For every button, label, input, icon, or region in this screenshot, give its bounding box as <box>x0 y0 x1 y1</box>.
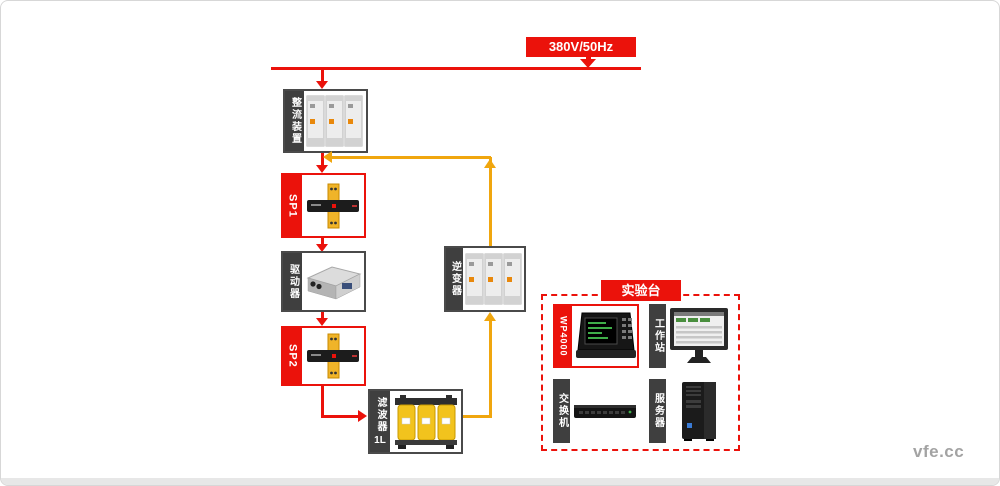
diagram-canvas: 380V/50Hz 整流装置 <box>0 0 1000 486</box>
filter-label: 滤波器 <box>375 397 385 433</box>
server-block: 服务器 <box>649 379 732 443</box>
switch-label: 交换机 <box>557 393 567 429</box>
sp2-label-strip: SP2 <box>283 328 302 384</box>
filter-block: 滤波器 1L <box>368 389 463 454</box>
tower-server-icon <box>677 381 721 441</box>
sp2-to-filter-hline <box>321 415 359 418</box>
filter-to-inverter-hline <box>463 415 492 418</box>
switch-label-strip: 交换机 <box>553 379 570 443</box>
current-sensor-icon <box>305 183 361 229</box>
watermark: vfe.cc <box>913 442 964 462</box>
power-label-arrowhead <box>580 59 596 68</box>
cabinet-rack-icon <box>465 253 523 305</box>
sp1-content <box>302 175 364 236</box>
inverter-input-arrowhead <box>484 312 496 321</box>
switch-content <box>570 379 639 443</box>
inverter-label-strip: 逆变器 <box>446 248 463 310</box>
monitor-icon <box>668 307 730 365</box>
feedback-return-arrowhead <box>323 151 332 163</box>
filter-sub-label: 1L <box>374 435 386 446</box>
driver-content <box>302 253 364 310</box>
sp1-label: SP1 <box>287 194 299 218</box>
wp4000-content <box>572 306 637 366</box>
bus-to-rectifier-arrowhead <box>316 81 328 89</box>
driver-label: 驱动器 <box>288 264 298 300</box>
workstation-label-strip: 工作站 <box>649 304 666 368</box>
filter-content <box>390 391 461 452</box>
switch-block: 交换机 <box>553 379 639 443</box>
power-analyzer-icon <box>573 310 637 362</box>
feedback-return-hline <box>331 156 491 159</box>
rectifier-content <box>304 91 366 151</box>
server-label-strip: 服务器 <box>649 379 666 443</box>
drive-unit-icon <box>302 261 364 303</box>
power-voltage-label: 380V/50Hz <box>526 37 636 57</box>
cabinet-rack-icon <box>306 95 364 147</box>
bottom-band <box>1 478 999 485</box>
driver-to-sp2-arrowhead <box>316 318 328 326</box>
inverter-return-vline <box>489 157 492 246</box>
wp4000-block: WP4000 <box>553 304 639 368</box>
server-label: 服务器 <box>653 393 663 429</box>
sp2-to-filter-arrowhead <box>358 410 367 422</box>
inverter-return-arrowhead <box>484 159 496 168</box>
sp2-label: SP2 <box>287 344 299 368</box>
inverter-block: 逆变器 <box>444 246 526 312</box>
server-content <box>666 379 732 443</box>
driver-block: 驱动器 <box>281 251 366 312</box>
rectifier-to-sp1-arrowhead <box>316 165 328 173</box>
filter-label-strip: 滤波器 1L <box>370 391 390 452</box>
network-switch-icon <box>573 397 637 425</box>
sp2-to-filter-vline <box>321 386 324 418</box>
wp4000-label: WP4000 <box>559 316 569 357</box>
sp1-sensor-block: SP1 <box>281 173 366 238</box>
workstation-block: 工作站 <box>649 304 732 368</box>
sp1-label-strip: SP1 <box>283 175 302 236</box>
current-sensor-icon <box>305 333 361 379</box>
rectifier-label: 整流装置 <box>290 97 300 145</box>
wp4000-label-strip: WP4000 <box>555 306 572 366</box>
reactor-filter-icon <box>392 394 460 450</box>
sp2-content <box>302 328 364 384</box>
filter-to-inverter-vline <box>489 321 492 418</box>
rectifier-block: 整流装置 <box>283 89 368 153</box>
inverter-content <box>463 248 524 310</box>
inverter-label: 逆变器 <box>450 261 460 297</box>
test-bench-title: 实验台 <box>601 280 681 301</box>
workstation-label: 工作站 <box>653 318 663 354</box>
driver-label-strip: 驱动器 <box>283 253 302 310</box>
workstation-content <box>666 304 732 368</box>
rectifier-label-strip: 整流装置 <box>285 91 304 151</box>
sp2-sensor-block: SP2 <box>281 326 366 386</box>
